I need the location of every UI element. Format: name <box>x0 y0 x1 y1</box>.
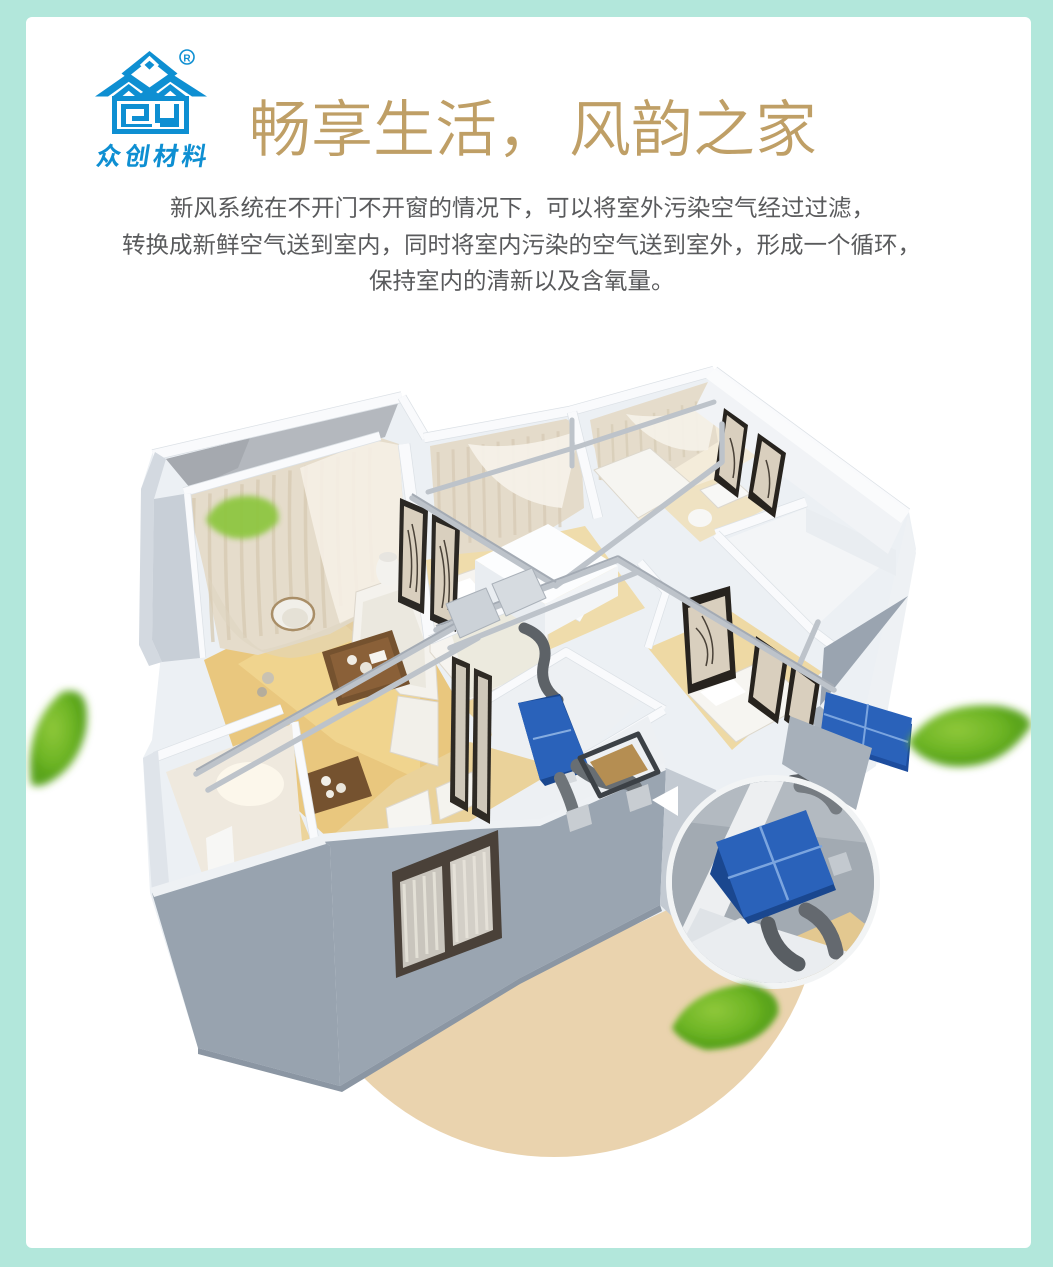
svg-text:R: R <box>183 54 191 65</box>
